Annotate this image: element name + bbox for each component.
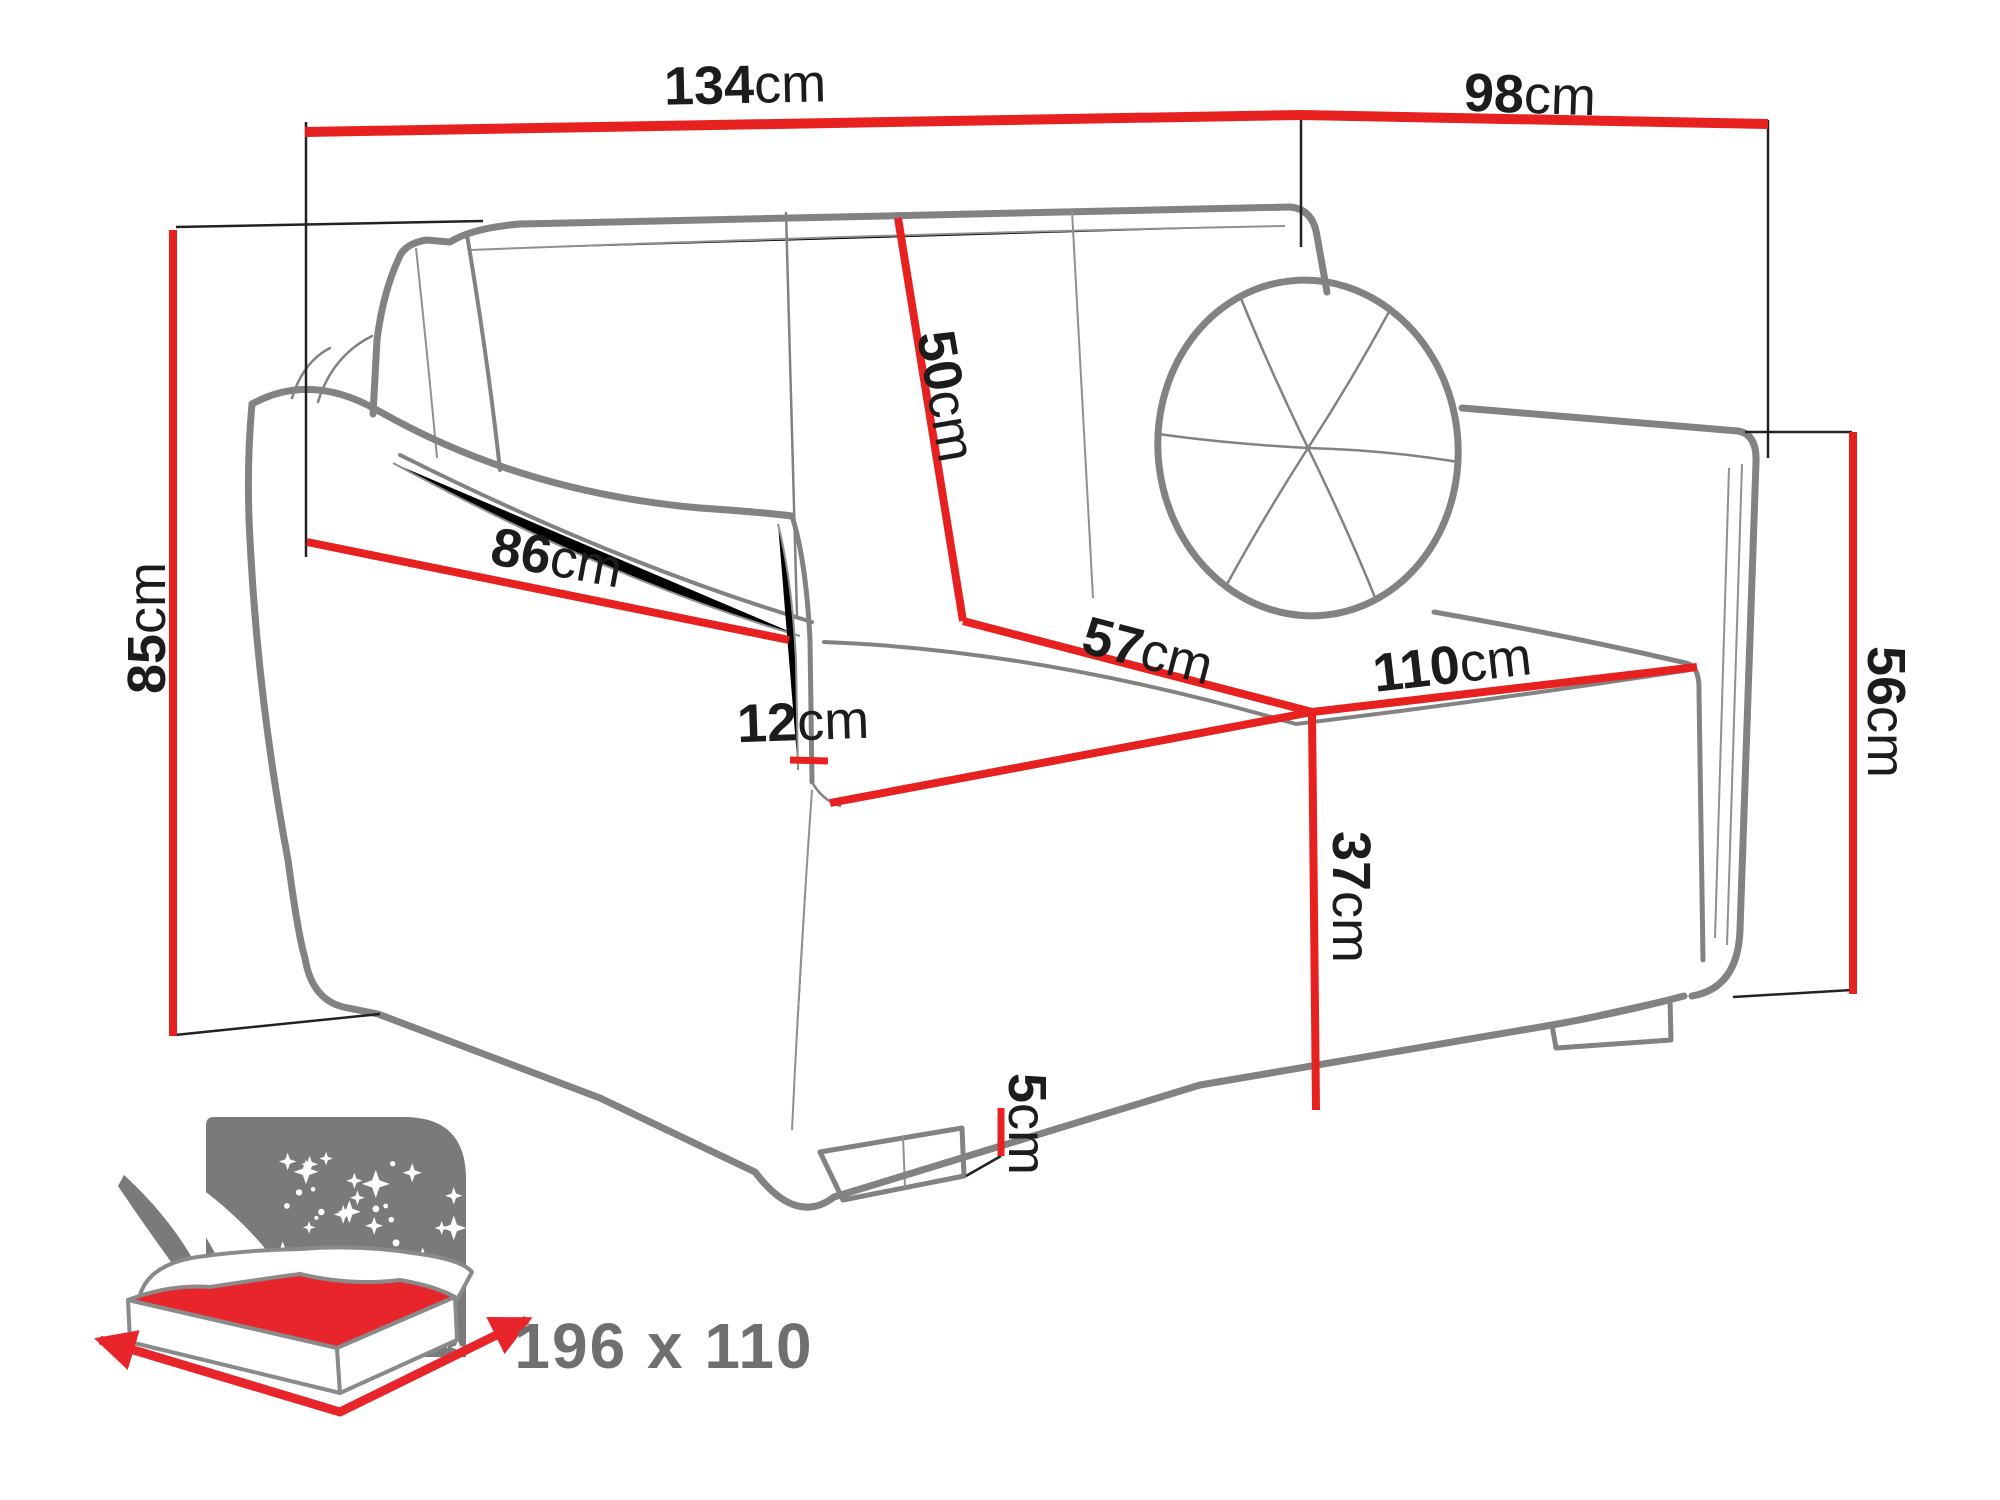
left-armrest-top-ridge (252, 389, 792, 516)
label-leg-height: 5cm (997, 1073, 1057, 1175)
backrest-center-seam (786, 213, 797, 616)
witness-56-bottom (1733, 990, 1852, 997)
witness-5-leg (966, 1156, 1001, 1176)
dim-line-width-overall-134 (305, 115, 1301, 132)
backrest-left-cushion-seam (467, 235, 500, 470)
backrest-left-cushion-seam-2 (416, 248, 437, 458)
dim-line-seat-height-37 (1312, 712, 1316, 1110)
label-width-overall: 134cm (663, 53, 826, 116)
dim-line-seat-front-left (830, 712, 1312, 803)
sofa-dimension-diagram: 134cm 98cm 85cm 50cm 86cm 12cm 57cm 110c… (0, 0, 2000, 1500)
witness-85-bottom (175, 1014, 380, 1035)
label-armrest-thickness: 12cm (736, 690, 870, 755)
bolster-pillow-seams (1158, 296, 1458, 600)
label-seat-height: 37cm (1321, 831, 1381, 963)
front-left-corner-seam (792, 790, 812, 1130)
label-depth-overall: 98cm (1463, 63, 1597, 128)
label-armrest-length: 86cm (486, 516, 627, 599)
sofa-sketch (248, 207, 1756, 1207)
right-armrest-outer-edge (1462, 408, 1756, 996)
label-height-overall: 85cm (117, 562, 177, 694)
backrest-right-cushion-seam (1072, 211, 1093, 598)
sleeping-function-icon: 196 x 110 (100, 1117, 814, 1412)
diagram-canvas: 134cm 98cm 85cm 50cm 86cm 12cm 57cm 110c… (0, 0, 2000, 1500)
dimension-lines (173, 115, 1853, 1156)
sofa-outer-left-and-bottom-edge (248, 404, 1684, 1207)
label-seat-depth: 57cm (1076, 605, 1219, 696)
dim-tick-armrest-thickness-12 (790, 760, 828, 761)
witness-85-top (176, 221, 483, 227)
right-armrest-piping-2 (1715, 468, 1729, 938)
label-armrest-height: 56cm (1856, 646, 1916, 778)
label-backrest-height: 50cm (905, 326, 987, 466)
backrest-top-piping (470, 226, 1285, 250)
sleeping-area-size: 196 x 110 (514, 1310, 813, 1382)
